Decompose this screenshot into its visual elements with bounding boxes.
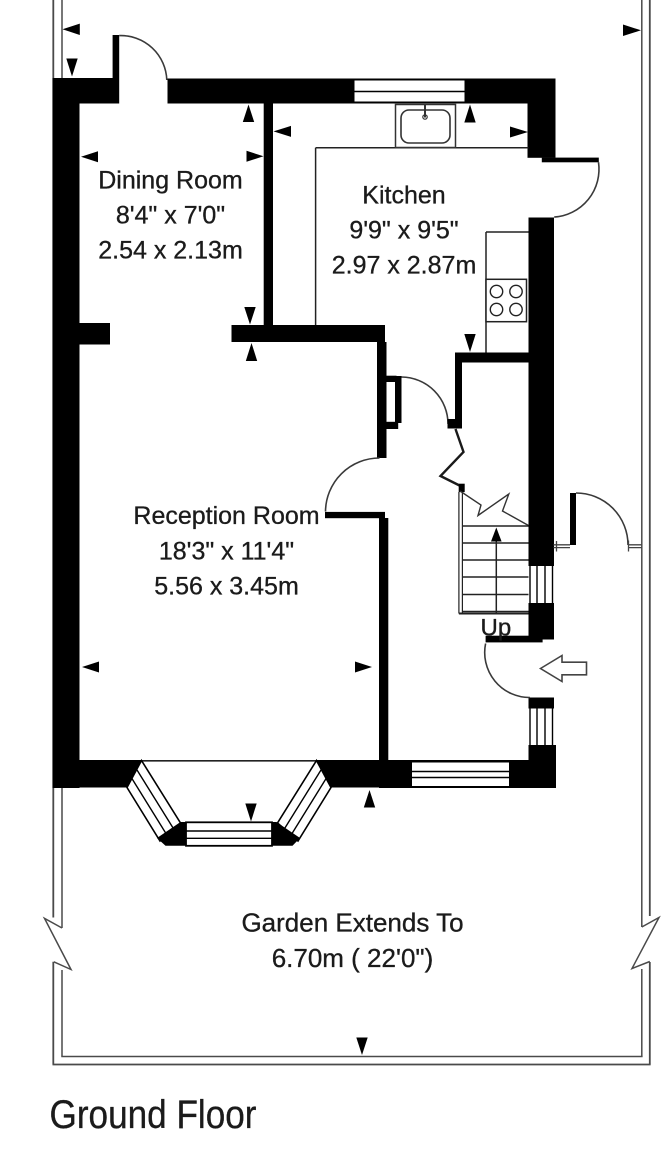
svg-text:2.97 x 2.87m: 2.97 x 2.87m bbox=[332, 252, 477, 280]
svg-text:2.54 x 2.13m: 2.54 x 2.13m bbox=[98, 237, 243, 265]
svg-text:Up: Up bbox=[481, 615, 512, 642]
svg-text:Garden Extends To: Garden Extends To bbox=[241, 908, 463, 938]
svg-text:9'9" x 9'5": 9'9" x 9'5" bbox=[349, 217, 458, 245]
svg-text:Ground Floor: Ground Floor bbox=[50, 1093, 257, 1137]
svg-text:5.56 x 3.45m: 5.56 x 3.45m bbox=[154, 573, 299, 601]
svg-text:18'3" x 11'4": 18'3" x 11'4" bbox=[159, 538, 294, 566]
svg-text:Dining Room: Dining Room bbox=[98, 167, 243, 195]
svg-text:Reception Room: Reception Room bbox=[133, 502, 319, 530]
svg-text:Kitchen: Kitchen bbox=[362, 182, 445, 210]
svg-text:6.70m ( 22'0"): 6.70m ( 22'0") bbox=[272, 943, 434, 973]
svg-text:8'4" x 7'0": 8'4" x 7'0" bbox=[116, 202, 225, 230]
